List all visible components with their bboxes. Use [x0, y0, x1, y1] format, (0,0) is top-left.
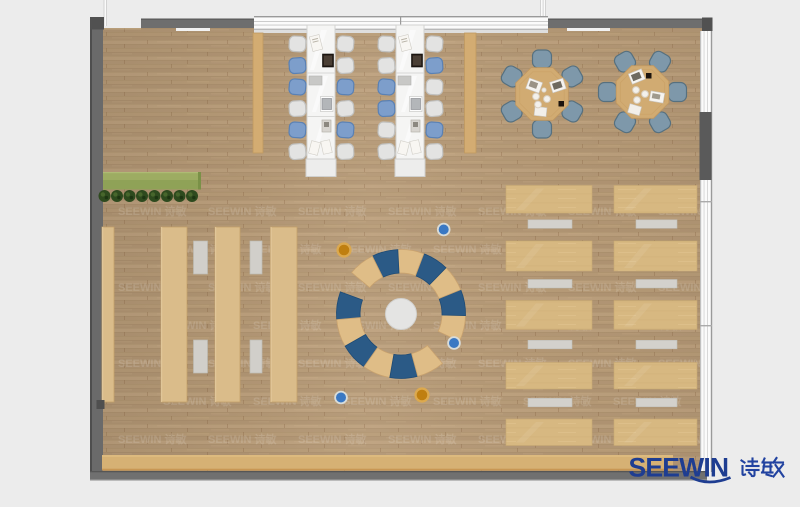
svg-text:SEEWIN 诗敏: SEEWIN 诗敏	[388, 204, 457, 218]
svg-text:SEEWIN 诗敏: SEEWIN 诗敏	[433, 394, 502, 408]
svg-text:SEEWIN 诗敏: SEEWIN 诗敏	[208, 204, 277, 218]
svg-text:SEEWIN 诗敏: SEEWIN 诗敏	[343, 394, 412, 408]
svg-text:SEEWIN: SEEWIN	[629, 453, 729, 483]
svg-text:SEEWIN 诗敏: SEEWIN 诗敏	[568, 280, 637, 294]
svg-text:SEEWIN 诗敏: SEEWIN 诗敏	[433, 242, 502, 256]
svg-text:SEEWIN 诗敏: SEEWIN 诗敏	[298, 204, 367, 218]
svg-text:SEEWIN 诗敏: SEEWIN 诗敏	[118, 204, 187, 218]
svg-text:SEEWIN 诗敏: SEEWIN 诗敏	[388, 432, 457, 446]
svg-text:SEEWIN 诗敏: SEEWIN 诗敏	[118, 432, 187, 446]
svg-text:SEEWIN 诗敏: SEEWIN 诗敏	[298, 432, 367, 446]
svg-text:SEEWIN 诗敏: SEEWIN 诗敏	[298, 280, 367, 294]
svg-text:SEEWIN 诗敏: SEEWIN 诗敏	[208, 432, 277, 446]
